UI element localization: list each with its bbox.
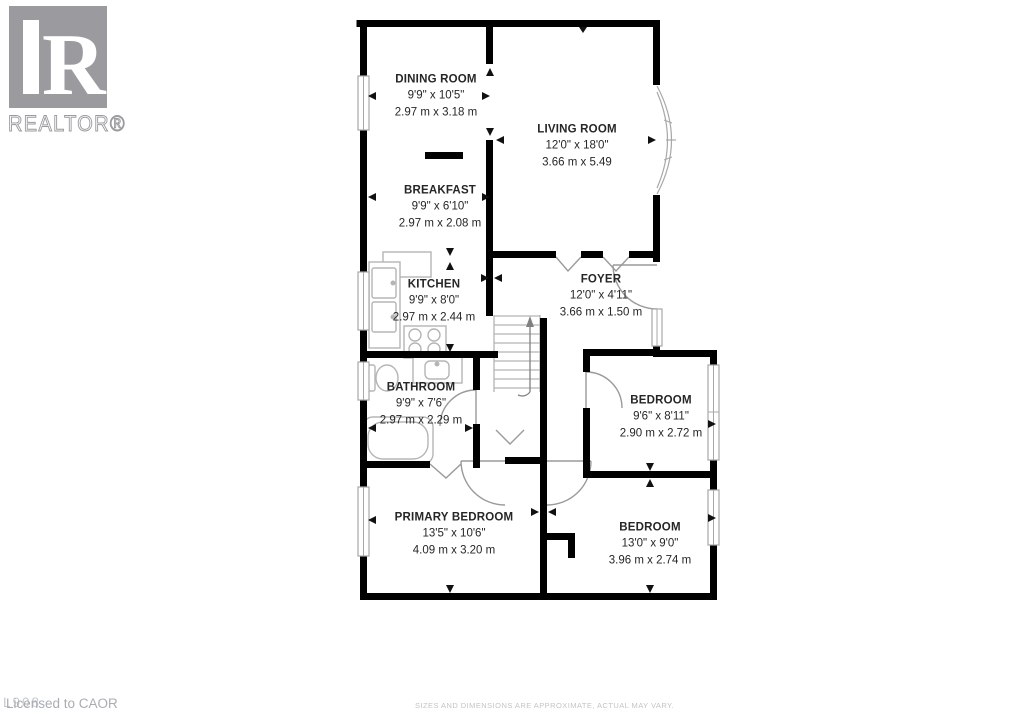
room-label-bedroom-2: BEDROOM 13'0" x 9'0" 3.96 m x 2.74 m	[609, 520, 691, 569]
room-name: FOYER	[560, 272, 642, 288]
room-label-primary-bedroom: PRIMARY BEDROOM 13'5" x 10'6" 4.09 m x 3…	[395, 510, 514, 559]
primary-bedroom-door	[461, 461, 505, 505]
room-name: PRIMARY BEDROOM	[395, 510, 514, 526]
room-dim-metric: 3.66 m x 5.49	[537, 154, 617, 170]
room-name: BEDROOM	[609, 520, 691, 536]
stairs	[494, 315, 540, 396]
stairs-direction-arrow	[518, 316, 534, 396]
room-label-bathroom: BATHROOM 9'9" x 7'6" 2.97 m x 2.29 m	[380, 380, 462, 429]
room-label-foyer: FOYER 12'0" x 4'11" 3.66 m x 1.50 m	[560, 272, 642, 321]
room-dim-metric: 2.97 m x 2.29 m	[380, 412, 462, 428]
room-dim-imperial: 9'9" x 7'6"	[380, 396, 462, 412]
room-dim-metric: 3.66 m x 1.50 m	[560, 304, 642, 320]
room-dim-metric: 4.09 m x 3.20 m	[395, 542, 514, 558]
room-label-dining: DINING ROOM 9'9" x 10'5" 2.97 m x 3.18 m	[395, 72, 477, 121]
room-name: BEDROOM	[620, 393, 702, 409]
room-dim-imperial: 9'9" x 10'5"	[395, 88, 477, 104]
room-name: LIVING ROOM	[537, 122, 617, 138]
room-name: KITCHEN	[393, 277, 475, 293]
floor-plan	[0, 0, 1024, 723]
room-dim-imperial: 13'0" x 9'0"	[609, 536, 691, 552]
room-label-living: LIVING ROOM 12'0" x 18'0" 3.66 m x 5.49	[537, 122, 617, 171]
bedroom-1-door	[586, 372, 622, 408]
floorplan-page: { "branding": { "logo_letter": "R", "log…	[0, 0, 1024, 723]
disclaimer-text: SIZES AND DIMENSIONS ARE APPROXIMATE, AC…	[415, 701, 674, 710]
room-dim-metric: 2.97 m x 3.18 m	[395, 104, 477, 120]
room-dim-imperial: 13'5" x 10'6"	[395, 526, 514, 542]
room-label-kitchen: KITCHEN 9'9" x 8'0" 2.97 m x 2.44 m	[393, 277, 475, 326]
room-dim-metric: 2.90 m x 2.72 m	[620, 425, 702, 441]
room-dim-metric: 2.97 m x 2.08 m	[399, 215, 481, 231]
room-dim-imperial: 9'9" x 8'0"	[393, 293, 475, 309]
room-dim-imperial: 9'9" x 6'10"	[399, 199, 481, 215]
room-dim-imperial: 9'6" x 8'11"	[620, 409, 702, 425]
room-name: BREAKFAST	[399, 183, 481, 199]
room-dim-imperial: 12'0" x 18'0"	[537, 138, 617, 154]
room-name: BATHROOM	[380, 380, 462, 396]
room-name: DINING ROOM	[395, 72, 477, 88]
room-label-breakfast: BREAKFAST 9'9" x 6'10" 2.97 m x 2.08 m	[399, 183, 481, 232]
room-label-bedroom-1: BEDROOM 9'6" x 8'11" 2.90 m x 2.72 m	[620, 393, 702, 442]
licensed-text: Licensed to CAOR	[6, 696, 118, 711]
room-dim-metric: 2.97 m x 2.44 m	[393, 309, 475, 325]
room-dim-imperial: 12'0" x 4'11"	[560, 288, 642, 304]
room-dim-metric: 3.96 m x 2.74 m	[609, 552, 691, 568]
bow-window	[657, 86, 676, 194]
